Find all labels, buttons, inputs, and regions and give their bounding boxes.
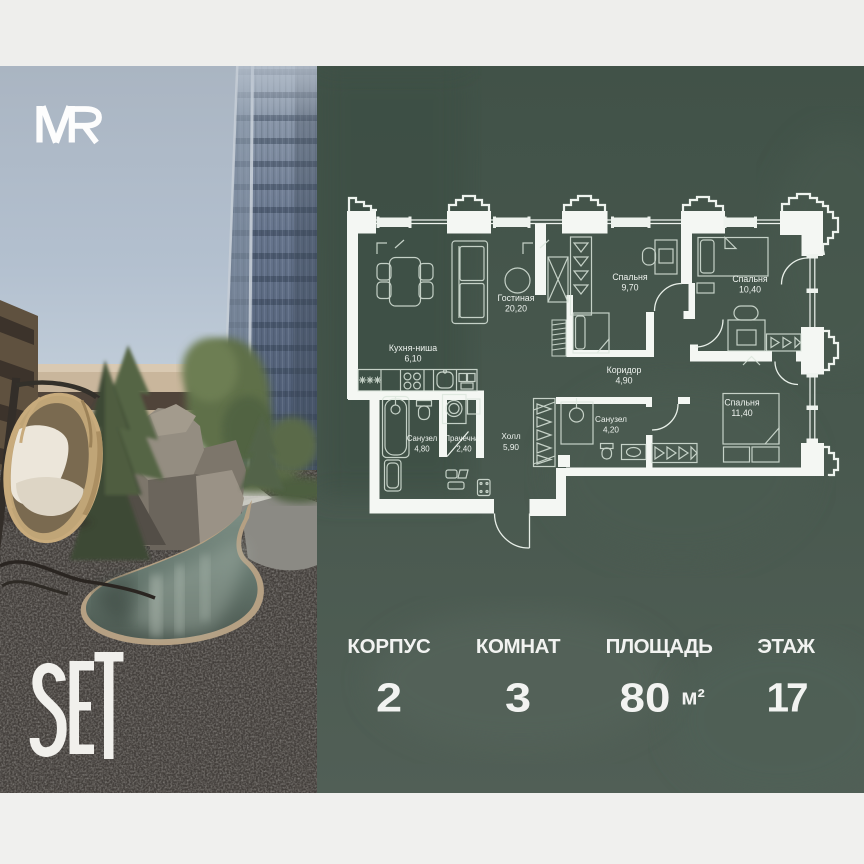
svg-text:9,70: 9,70 xyxy=(621,283,638,293)
svg-text:Холл: Холл xyxy=(501,432,521,441)
svg-text:2: 2 xyxy=(376,675,402,720)
svg-text:Прачечная: Прачечная xyxy=(444,434,483,443)
svg-text:КОМНАТ: КОМНАТ xyxy=(476,635,561,658)
svg-text:Гостиная: Гостиная xyxy=(498,293,535,303)
svg-text:2,40: 2,40 xyxy=(456,445,472,454)
svg-text:Санузел: Санузел xyxy=(407,434,438,443)
svg-text:80: 80 xyxy=(620,676,671,721)
svg-text:Кухня-ниша: Кухня-ниша xyxy=(389,343,437,353)
svg-text:4,20: 4,20 xyxy=(603,426,619,435)
svg-text:3: 3 xyxy=(505,675,531,720)
svg-text:11,40: 11,40 xyxy=(731,408,752,418)
svg-text:Спальня: Спальня xyxy=(724,398,760,408)
svg-text:Спальня: Спальня xyxy=(732,274,768,284)
svg-text:4,90: 4,90 xyxy=(615,376,632,386)
svg-text:ПЛОЩАДЬ: ПЛОЩАДЬ xyxy=(606,635,713,658)
svg-text:Санузел: Санузел xyxy=(595,415,627,424)
svg-text:ЭТАЖ: ЭТАЖ xyxy=(757,635,815,658)
svg-text:4,80: 4,80 xyxy=(414,445,430,454)
svg-text:10,40: 10,40 xyxy=(739,285,761,295)
svg-text:17: 17 xyxy=(766,675,807,721)
svg-text:м²: м² xyxy=(681,685,705,710)
svg-text:5,90: 5,90 xyxy=(503,443,519,452)
svg-text:Коридор: Коридор xyxy=(607,365,642,375)
svg-text:20,20: 20,20 xyxy=(505,304,527,314)
svg-text:КОРПУС: КОРПУС xyxy=(347,635,431,658)
svg-text:6,10: 6,10 xyxy=(404,354,421,364)
svg-text:Спальня: Спальня xyxy=(612,272,648,282)
